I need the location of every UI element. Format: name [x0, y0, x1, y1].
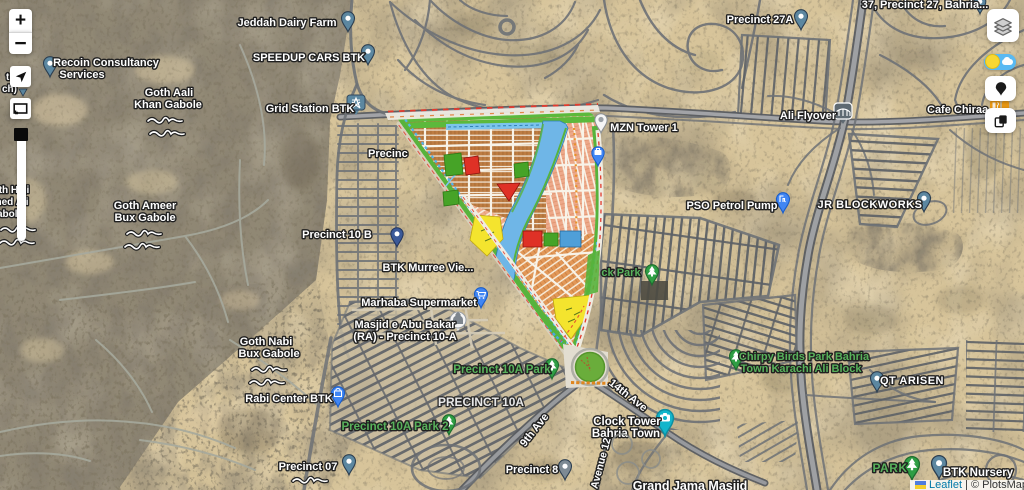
svg-text:Rabi Center BTK: Rabi Center BTK — [245, 393, 332, 405]
svg-text:Chirpy Birds Park Bahria: Chirpy Birds Park Bahria — [739, 351, 870, 363]
svg-text:Precinct 8: Precinct 8 — [506, 464, 559, 476]
svg-text:Goth Ameer: Goth Ameer — [114, 200, 177, 212]
svg-text:Goth Aali: Goth Aali — [145, 87, 193, 99]
svg-text:Town Karachi Ali Block: Town Karachi Ali Block — [740, 363, 862, 375]
svg-text:ck Park: ck Park — [601, 267, 641, 279]
svg-text:Goth Nabi: Goth Nabi — [240, 336, 293, 348]
svg-text:QT ARISEN: QT ARISEN — [880, 375, 944, 387]
svg-text:BTK Nursery: BTK Nursery — [943, 467, 1014, 479]
svg-text:JR BLOCKWORKS: JR BLOCKWORKS — [818, 199, 923, 211]
svg-text:Grid Station BTK: Grid Station BTK — [266, 103, 355, 115]
svg-text:37, Precinct 27, Bahria...: 37, Precinct 27, Bahria... — [862, 0, 989, 11]
svg-text:Marhaba Supermarket: Marhaba Supermarket — [361, 297, 477, 309]
svg-text:Clock Tower: Clock Tower — [593, 416, 661, 428]
svg-text:Khan Gabole: Khan Gabole — [134, 99, 202, 111]
svg-text:Services: Services — [59, 69, 104, 81]
svg-text:Jeddah Dairy Farm: Jeddah Dairy Farm — [237, 17, 336, 29]
svg-text:PRECINCT 10A: PRECINCT 10A — [438, 397, 524, 409]
svg-text:Precinct 10 B: Precinct 10 B — [302, 229, 372, 241]
svg-text:Recoin Consultancy: Recoin Consultancy — [53, 57, 160, 69]
svg-text:Grand Jama Masjid: Grand Jama Masjid — [633, 479, 748, 490]
svg-text:Bux Gabole: Bux Gabole — [238, 348, 299, 360]
svg-text:SPEEDUP CARS BTK: SPEEDUP CARS BTK — [253, 52, 365, 64]
svg-text:Masjid e Abu Bakar: Masjid e Abu Bakar — [354, 319, 456, 331]
svg-text:Ali Flyover: Ali Flyover — [780, 110, 837, 122]
svg-text:Cafe Chiraa: Cafe Chiraa — [927, 104, 989, 116]
svg-text:Bux Gabole: Bux Gabole — [114, 212, 175, 224]
svg-text:Precinct 07: Precinct 07 — [279, 461, 338, 473]
svg-text:PSO Petrol Pump: PSO Petrol Pump — [686, 200, 777, 212]
svg-text:Precinct 10A Park: Precinct 10A Park — [453, 364, 551, 376]
svg-text:Precinc: Precinc — [368, 148, 408, 160]
svg-text:MZN Tower 1: MZN Tower 1 — [610, 122, 678, 134]
svg-text:PARK: PARK — [872, 461, 907, 475]
svg-text:BTK Murree Vie...: BTK Murree Vie... — [383, 262, 474, 274]
svg-text:Precinct 27A: Precinct 27A — [727, 14, 794, 26]
svg-text:(RA) - Precinct 10-A: (RA) - Precinct 10-A — [353, 331, 456, 343]
svg-text:Precinct 10A Park 2: Precinct 10A Park 2 — [342, 421, 449, 433]
